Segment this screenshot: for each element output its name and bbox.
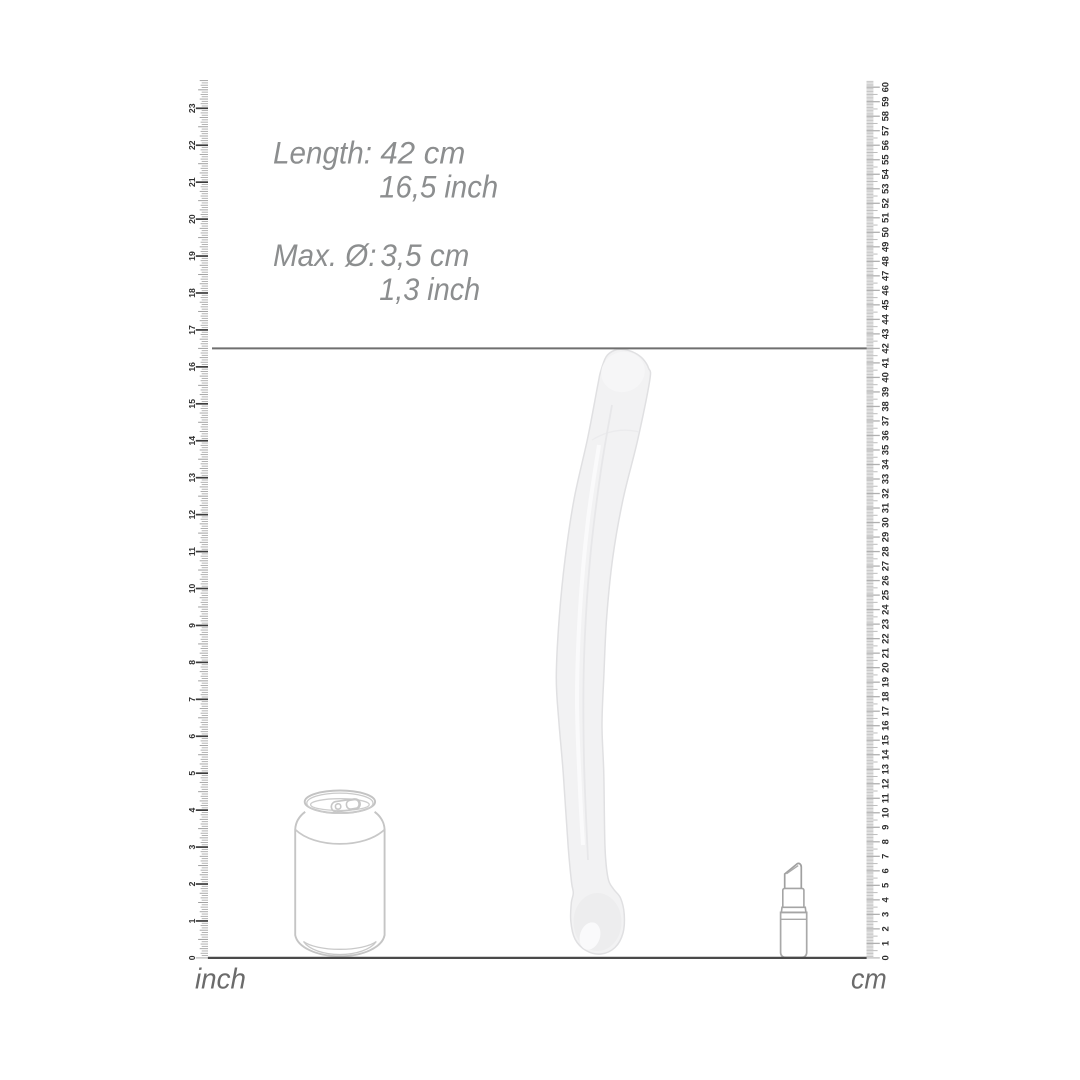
svg-text:36: 36 (879, 430, 890, 440)
svg-text:20: 20 (187, 214, 197, 224)
svg-text:27: 27 (879, 561, 890, 571)
svg-text:31: 31 (879, 503, 890, 513)
svg-text:48: 48 (879, 256, 890, 266)
svg-text:1: 1 (879, 941, 890, 946)
svg-text:18: 18 (879, 691, 890, 701)
svg-text:24: 24 (879, 604, 890, 615)
svg-text:52: 52 (879, 198, 890, 208)
svg-text:3: 3 (879, 912, 890, 917)
svg-text:11: 11 (879, 793, 890, 803)
svg-text:19: 19 (879, 677, 890, 687)
svg-text:cm: cm (851, 964, 887, 996)
svg-text:10: 10 (879, 808, 890, 818)
svg-text:33: 33 (879, 474, 890, 484)
svg-text:14: 14 (187, 436, 197, 446)
svg-text:49: 49 (879, 242, 890, 252)
svg-text:53: 53 (879, 184, 890, 194)
svg-text:inch: inch (195, 964, 246, 996)
svg-text:15: 15 (879, 735, 890, 745)
svg-text:8: 8 (187, 660, 197, 665)
svg-text:56: 56 (879, 140, 890, 150)
svg-text:46: 46 (879, 285, 890, 295)
svg-text:21: 21 (187, 177, 197, 187)
svg-text:22: 22 (879, 633, 890, 643)
svg-text:57: 57 (879, 126, 890, 136)
svg-text:44: 44 (879, 313, 890, 324)
svg-text:21: 21 (879, 648, 890, 658)
svg-text:37: 37 (879, 416, 890, 426)
svg-text:4: 4 (187, 808, 197, 813)
svg-text:13: 13 (187, 473, 197, 483)
svg-text:9: 9 (187, 623, 197, 628)
svg-text:30: 30 (879, 517, 890, 527)
svg-text:40: 40 (879, 372, 890, 382)
svg-text:17: 17 (879, 706, 890, 716)
svg-text:42 cm: 42 cm (380, 135, 465, 171)
svg-text:2: 2 (187, 881, 197, 886)
svg-text:15: 15 (187, 399, 197, 409)
svg-text:38: 38 (879, 401, 890, 411)
svg-text:2: 2 (879, 926, 890, 931)
svg-text:45: 45 (879, 300, 890, 310)
svg-text:11: 11 (187, 547, 197, 556)
svg-text:22: 22 (187, 140, 197, 150)
svg-text:16,5 inch: 16,5 inch (379, 168, 498, 204)
svg-text:18: 18 (187, 288, 197, 298)
svg-text:54: 54 (879, 168, 890, 179)
svg-text:14: 14 (879, 749, 890, 760)
svg-text:50: 50 (879, 227, 890, 237)
svg-text:1,3 inch: 1,3 inch (379, 271, 480, 307)
svg-text:16: 16 (187, 362, 197, 372)
svg-text:0: 0 (879, 955, 890, 960)
svg-text:7: 7 (187, 697, 197, 702)
svg-text:34: 34 (879, 459, 890, 470)
svg-text:43: 43 (879, 329, 890, 339)
svg-text:5: 5 (187, 771, 197, 776)
svg-text:6: 6 (879, 868, 890, 873)
svg-text:6: 6 (187, 734, 197, 739)
svg-text:59: 59 (879, 96, 890, 106)
svg-text:25: 25 (879, 590, 890, 600)
svg-text:28: 28 (879, 546, 890, 556)
svg-text:26: 26 (879, 575, 890, 585)
svg-text:23: 23 (879, 619, 890, 629)
svg-text:7: 7 (879, 854, 890, 859)
svg-text:47: 47 (879, 271, 890, 281)
svg-text:16: 16 (879, 720, 890, 730)
svg-text:3,5 cm: 3,5 cm (380, 237, 469, 273)
svg-text:5: 5 (879, 883, 890, 888)
svg-text:3: 3 (187, 844, 197, 849)
svg-text:17: 17 (187, 325, 197, 335)
svg-text:41: 41 (879, 358, 890, 368)
svg-text:58: 58 (879, 111, 890, 121)
svg-text:35: 35 (879, 445, 890, 455)
svg-text:60: 60 (879, 82, 890, 92)
svg-text:12: 12 (879, 779, 890, 789)
svg-text:29: 29 (879, 532, 890, 542)
svg-text:23: 23 (187, 103, 197, 113)
svg-text:51: 51 (879, 213, 890, 223)
svg-text:10: 10 (187, 584, 197, 594)
svg-text:Length:: Length: (273, 135, 372, 171)
svg-text:12: 12 (187, 510, 197, 520)
svg-text:9: 9 (879, 825, 890, 830)
svg-text:8: 8 (879, 839, 890, 844)
svg-text:0: 0 (187, 955, 197, 960)
svg-text:39: 39 (879, 387, 890, 397)
svg-text:55: 55 (879, 155, 890, 165)
svg-text:32: 32 (879, 488, 890, 498)
svg-text:1: 1 (187, 918, 197, 923)
svg-text:Max. Ø:: Max. Ø: (273, 237, 377, 273)
svg-text:13: 13 (879, 764, 890, 774)
svg-text:42: 42 (879, 343, 890, 353)
svg-text:20: 20 (879, 662, 890, 672)
svg-text:4: 4 (879, 896, 890, 902)
svg-text:19: 19 (187, 251, 197, 261)
